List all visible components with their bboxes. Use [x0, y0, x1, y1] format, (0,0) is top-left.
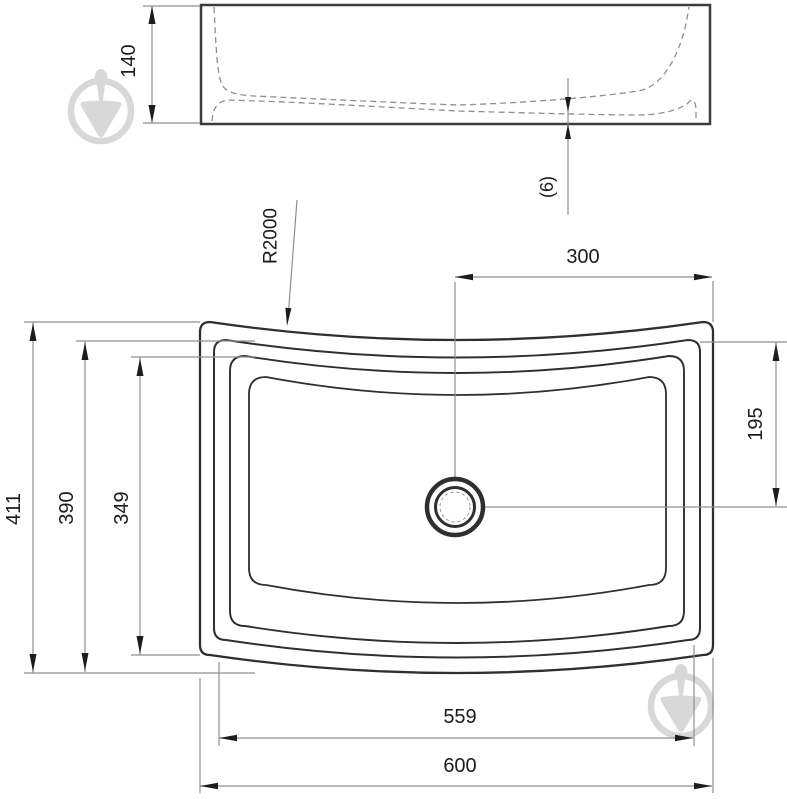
drain-hole — [427, 479, 483, 535]
drawing-canvas — [0, 0, 787, 799]
dim-basin-depth: 390 — [57, 491, 77, 524]
dim-overall-depth: 411 — [4, 493, 24, 525]
trowel-logo-icon — [71, 69, 131, 141]
dim-drain-offset-y: 195 — [746, 407, 766, 440]
trowel-logo-icon — [651, 664, 711, 736]
technical-drawing: 140 (6) R2000 300 195 411 390 349 559 60… — [0, 0, 787, 799]
dim-side-height: 140 — [119, 44, 139, 77]
dim-inner-width: 559 — [443, 707, 476, 727]
side-view-outline — [201, 5, 710, 124]
dim-edge-radius: R2000 — [262, 208, 281, 264]
dim-inner-depth: 349 — [112, 491, 132, 524]
dim-overall-width: 600 — [443, 756, 476, 776]
dim-drain-offset-x: 300 — [566, 247, 599, 267]
dim-bottom-thickness: (6) — [538, 176, 556, 198]
